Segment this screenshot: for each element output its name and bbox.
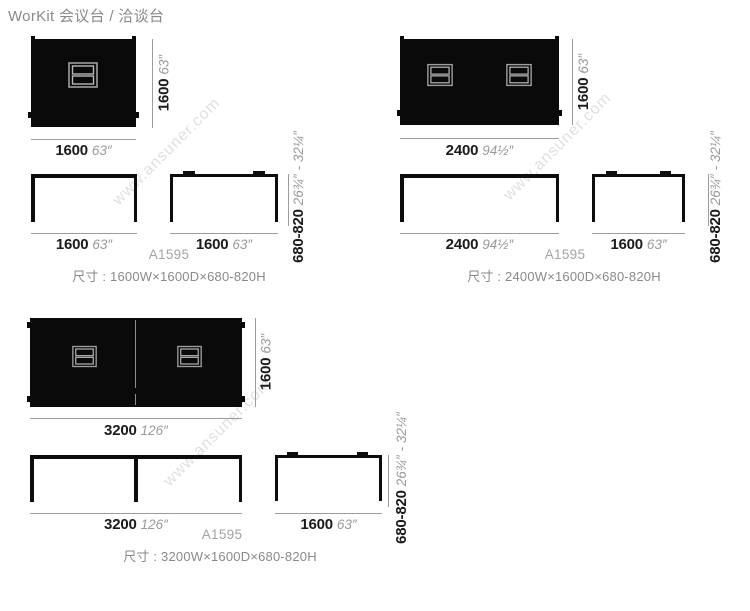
dim-line-front-width — [30, 513, 242, 514]
leg-tab — [31, 36, 35, 39]
table-front-top-bar — [31, 174, 137, 178]
spec-line: 尺寸 : 1600W×1600D×680-820H — [59, 266, 279, 285]
dim-line-side-width — [592, 233, 685, 234]
table-leg — [134, 177, 138, 222]
dim-line-front-width — [400, 233, 559, 234]
leg-tab — [27, 322, 30, 328]
dim-line-height — [388, 455, 389, 507]
dim-mm: 1600 — [300, 516, 333, 533]
table-leg — [379, 457, 382, 501]
depth-dim-label: 160063″ — [257, 318, 277, 407]
leg-tab — [28, 112, 31, 118]
leg-tab — [400, 36, 404, 39]
dim-in: 63″ — [92, 143, 112, 158]
top-width-dim-label: 3200126″ — [30, 422, 242, 440]
spec-line: 尺寸 : 3200W×1600D×680-820H — [110, 546, 330, 565]
spec-sheet-canvas: WorKit 会议台 / 洽谈台 www.ansuner.com www.ans… — [0, 0, 750, 611]
grommet-side-icon — [660, 171, 671, 175]
dim-mm: 1600 — [575, 78, 592, 111]
leg-tab — [136, 112, 139, 118]
dim-in: 26¾″ - 32¼″ — [708, 131, 723, 205]
table-leg — [170, 176, 173, 222]
dim-line-side-width — [275, 513, 382, 514]
depth-dim-label: 160063″ — [155, 39, 175, 128]
dim-line-width — [400, 138, 559, 139]
dim-in: 94½″ — [482, 237, 513, 252]
table-leg — [134, 458, 138, 502]
leg-tab — [397, 110, 400, 116]
dim-in: 94½″ — [482, 143, 513, 158]
dim-mm: 1600 — [196, 236, 229, 253]
grommet-side-icon — [357, 452, 368, 456]
table-leg — [31, 177, 35, 222]
table-top-view — [400, 39, 559, 125]
side-width-dim-label: 160063″ — [592, 236, 685, 254]
dim-mm: 680-820 — [290, 209, 307, 263]
dim-line-depth — [572, 39, 573, 125]
leg-tab — [555, 36, 559, 39]
page-title: WorKit 会议台 / 洽谈台 — [8, 5, 164, 26]
dim-mm: 680-820 — [393, 490, 410, 544]
table-leg — [30, 458, 34, 502]
dim-mm: 1600 — [258, 358, 275, 391]
dim-in: 63″ — [337, 517, 357, 532]
dim-mm: 1600 — [55, 142, 88, 159]
leg-tab — [27, 396, 30, 402]
tabletop-seam — [135, 394, 136, 405]
height-dim-label: 680-82026¾″ - 32¼″ — [289, 122, 309, 272]
dim-in: 126″ — [141, 517, 168, 532]
cable-port-icon — [177, 345, 202, 368]
tabletop-seam — [135, 320, 136, 388]
grommet-side-icon — [287, 452, 298, 456]
top-width-dim-label: 240094½″ — [400, 142, 559, 160]
table-leg — [682, 176, 685, 222]
cable-port-icon — [72, 345, 97, 368]
height-dim-label: 680-82026¾″ - 32¼″ — [706, 122, 726, 272]
dim-in: 63″ — [92, 237, 112, 252]
model-number: A1595 — [192, 527, 252, 542]
leg-tab — [559, 110, 562, 116]
dim-mm: 2400 — [446, 236, 479, 253]
cable-port-icon — [506, 63, 532, 87]
dim-in: 63″ — [232, 237, 252, 252]
dim-line-side-width — [170, 233, 278, 234]
height-dim-label: 680-82026¾″ - 32¼″ — [392, 403, 412, 553]
cable-port-icon — [68, 62, 98, 88]
grommet-side-icon — [606, 171, 617, 175]
dim-line-width — [31, 139, 136, 140]
leg-tab — [242, 322, 245, 328]
dim-in: 63″ — [576, 54, 591, 74]
grommet-side-icon — [183, 171, 195, 175]
cable-port-icon — [427, 63, 453, 87]
table-leg — [400, 177, 404, 222]
side-width-dim-label: 160063″ — [275, 516, 382, 534]
leg-tab — [242, 396, 245, 402]
dim-mm: 1600 — [56, 236, 89, 253]
dim-line-width — [30, 418, 242, 419]
leg-tab — [132, 36, 136, 39]
table-leg — [556, 177, 560, 222]
grommet-side-icon — [253, 171, 265, 175]
spec-line: 尺寸 : 2400W×1600D×680-820H — [454, 266, 674, 285]
dim-mm: 3200 — [104, 422, 137, 439]
front-width-dim-label: 160063″ — [31, 236, 137, 254]
table-top-view — [30, 318, 242, 407]
dim-in: 26¾″ - 32¼″ — [394, 412, 409, 486]
table-leg — [275, 176, 278, 222]
dim-in: 126″ — [141, 423, 168, 438]
top-width-dim-label: 160063″ — [31, 142, 136, 160]
dim-mm: 1600 — [156, 79, 173, 112]
table-leg — [275, 457, 278, 501]
dim-in: 63″ — [647, 237, 667, 252]
dim-mm: 2400 — [446, 142, 479, 159]
dim-in: 26¾″ - 32¼″ — [291, 131, 306, 205]
model-number: A1595 — [535, 247, 595, 262]
dim-mm: 3200 — [104, 516, 137, 533]
table-leg — [592, 176, 595, 222]
depth-dim-label: 160063″ — [574, 39, 594, 125]
table-leg — [239, 458, 243, 502]
dim-mm: 680-820 — [707, 209, 724, 263]
dim-line-depth — [152, 39, 153, 128]
dim-in: 63″ — [259, 334, 274, 354]
dim-line-front-width — [31, 233, 137, 234]
table-front-top-bar — [400, 174, 559, 178]
dim-mm: 1600 — [610, 236, 643, 253]
dim-in: 63″ — [157, 55, 172, 75]
model-number: A1595 — [139, 247, 199, 262]
